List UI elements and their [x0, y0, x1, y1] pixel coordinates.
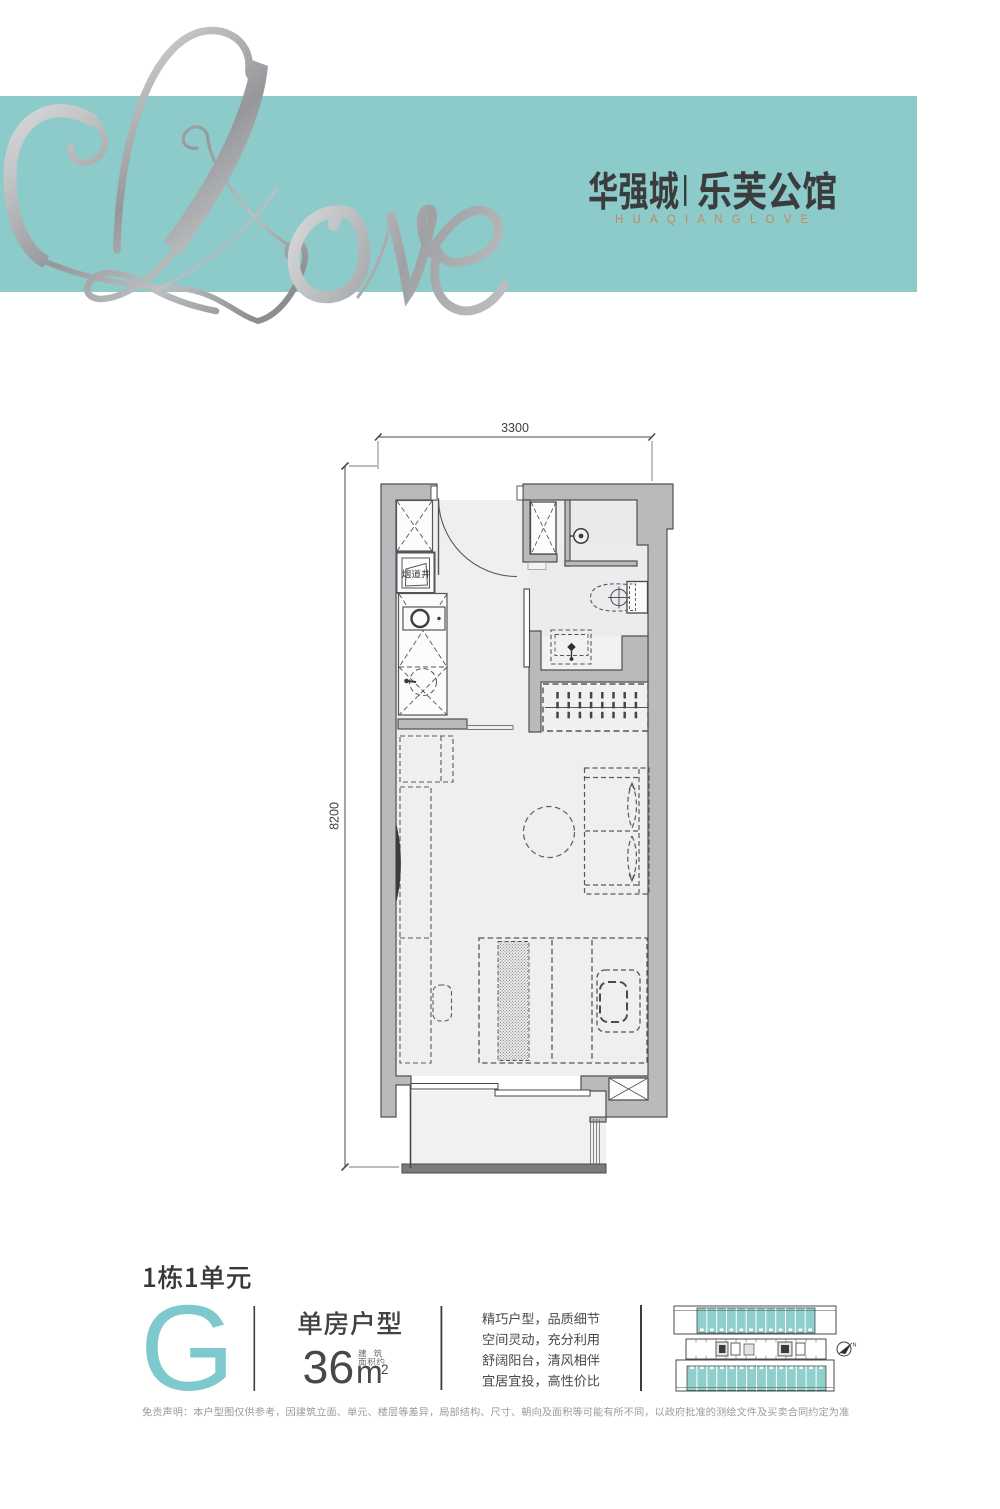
svg-text:2: 2: [381, 1362, 389, 1377]
svg-text:8200: 8200: [328, 802, 342, 830]
svg-text:36: 36: [303, 1341, 355, 1393]
svg-text:HUAQIANGLOVE: HUAQIANGLOVE: [615, 214, 817, 226]
svg-text:3300: 3300: [501, 421, 529, 435]
svg-text:N: N: [853, 1343, 857, 1349]
svg-text:G: G: [140, 1280, 235, 1416]
